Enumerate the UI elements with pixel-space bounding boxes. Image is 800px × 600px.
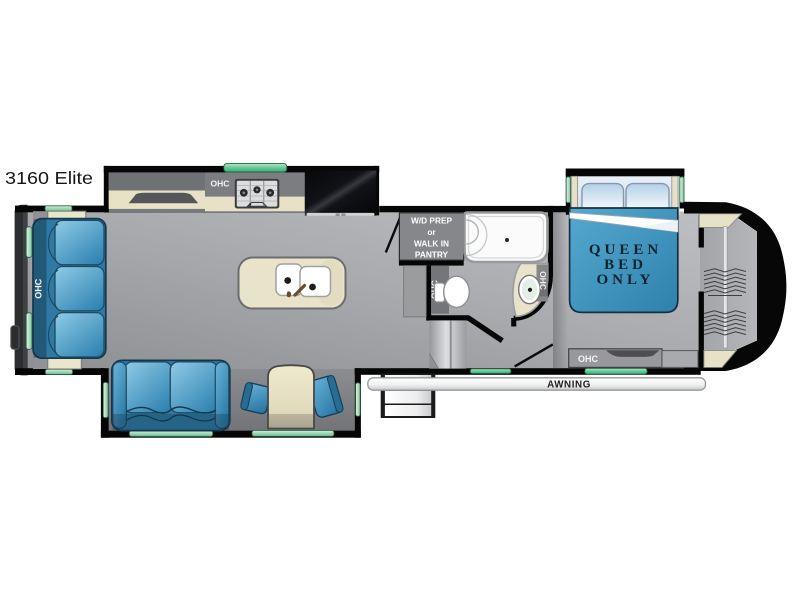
- svg-text:WALK IN: WALK IN: [414, 239, 449, 249]
- svg-text:QUEEN: QUEEN: [589, 242, 662, 258]
- svg-text:BED: BED: [604, 257, 647, 273]
- svg-text:3160 Elite: 3160 Elite: [5, 168, 93, 188]
- svg-text:OHC: OHC: [578, 354, 599, 364]
- svg-text:OHC: OHC: [211, 179, 230, 189]
- svg-text:or: or: [427, 227, 436, 237]
- svg-text:PANTRY: PANTRY: [415, 250, 449, 260]
- svg-text:OHC: OHC: [538, 271, 548, 290]
- svg-text:OHC: OHC: [34, 278, 44, 299]
- svg-text:W/D PREP: W/D PREP: [411, 216, 452, 226]
- svg-text:AWNING: AWNING: [547, 379, 591, 390]
- svg-text:ONLY: ONLY: [597, 272, 655, 288]
